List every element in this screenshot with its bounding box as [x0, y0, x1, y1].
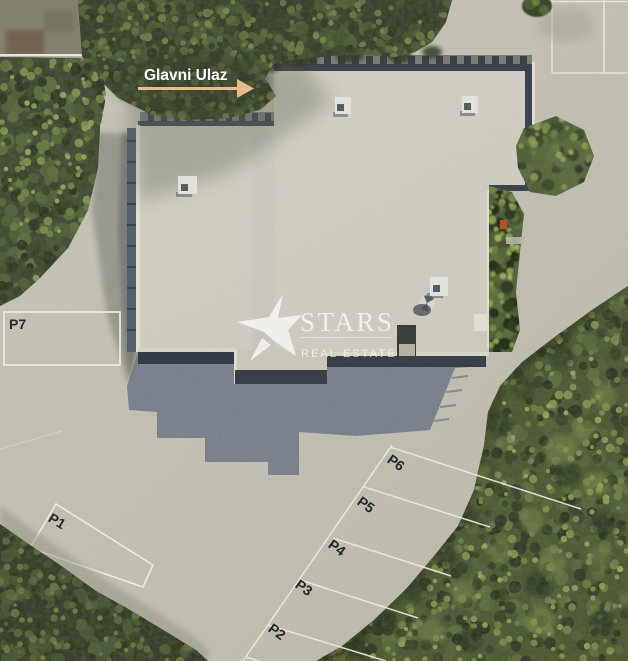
- svg-text:P7: P7: [9, 316, 26, 332]
- svg-text:STARS: STARS: [300, 307, 394, 337]
- svg-text:Glavni Ulaz: Glavni Ulaz: [144, 67, 228, 84]
- svg-text:REAL ESTATE: REAL ESTATE: [301, 348, 397, 360]
